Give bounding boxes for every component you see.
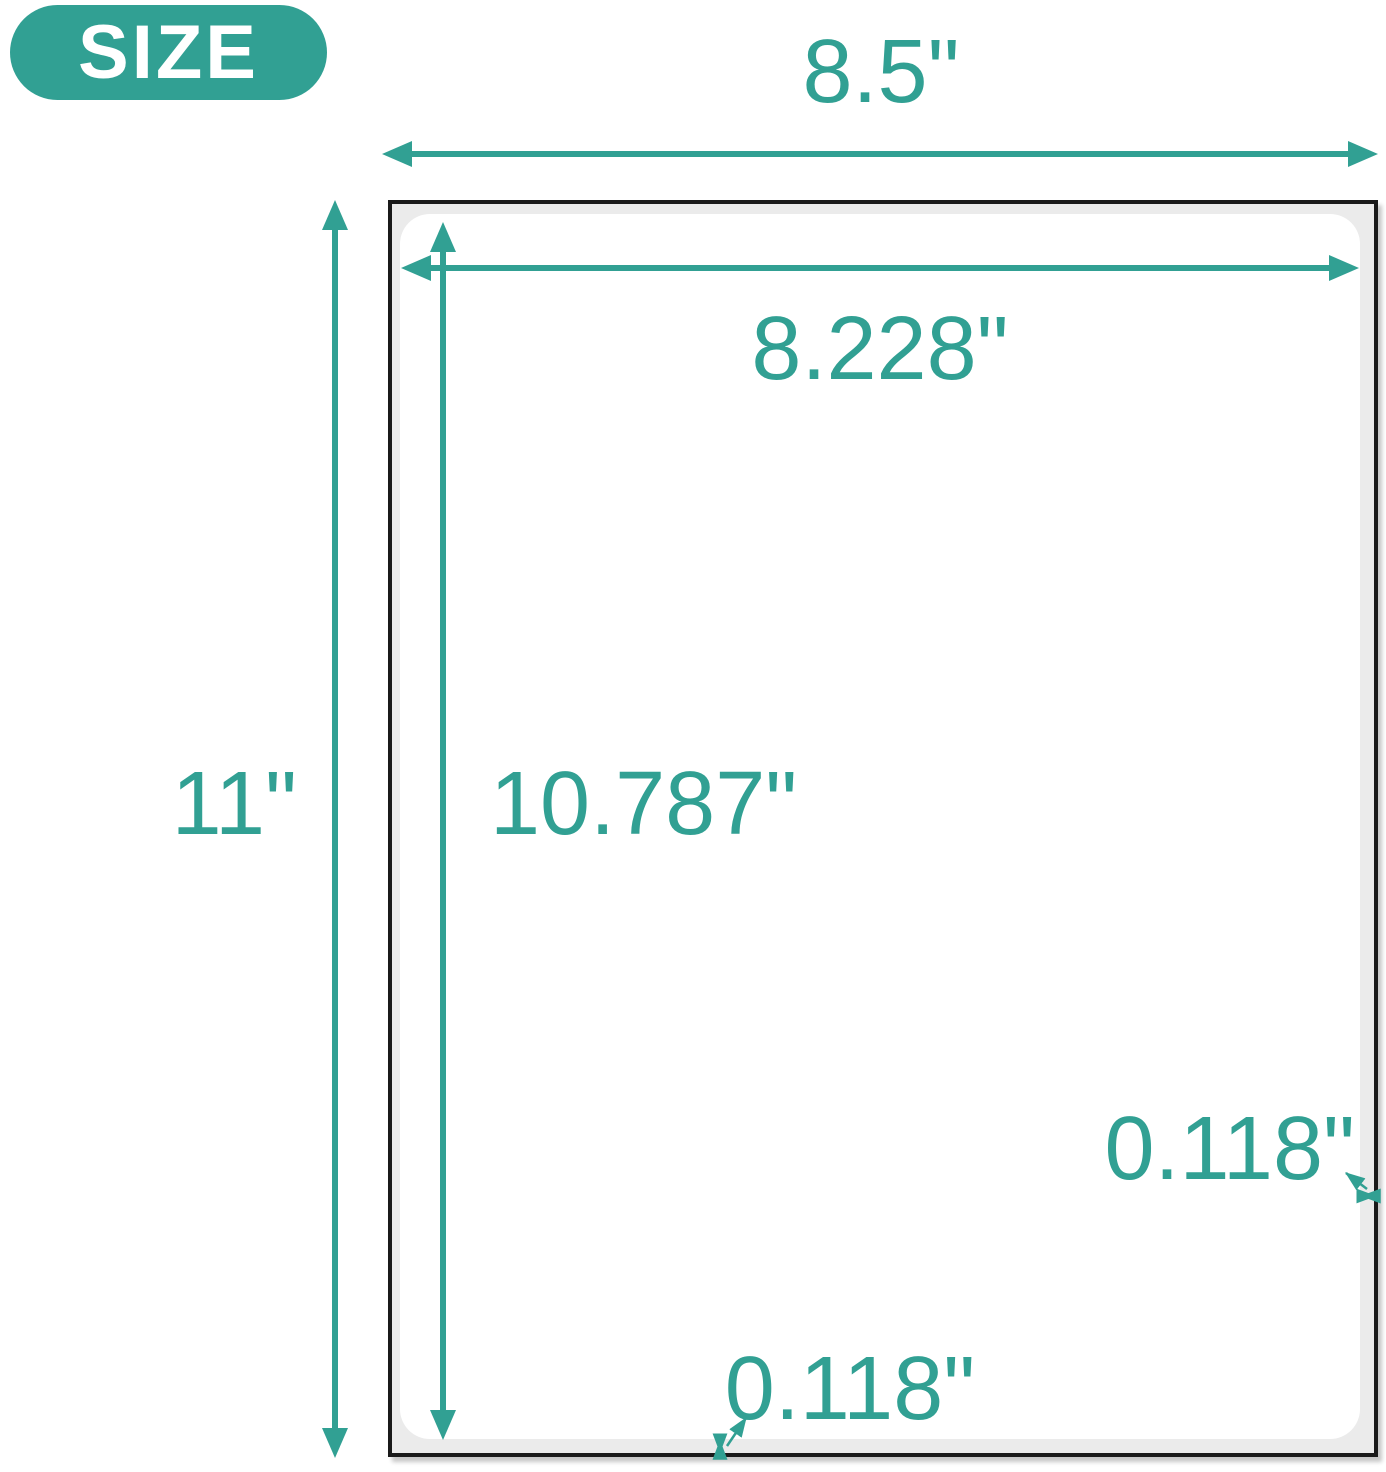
arrow-shaft: [440, 242, 446, 1420]
margin-right-pointer: [1332, 1162, 1386, 1206]
arrowhead-right-icon: [1329, 255, 1359, 281]
margin-bottom-pointer: [698, 1398, 770, 1470]
margin-right-dimension: 0.118": [1055, 1104, 1355, 1194]
arrow-shaft: [402, 151, 1358, 157]
sheet-width-dimension: 8.5": [384, 27, 1378, 117]
leader-line-icon: [1346, 1173, 1367, 1189]
label-width-dimension: 8.228": [401, 304, 1359, 394]
label-width-arrow: [401, 255, 1359, 281]
size-badge-label: SIZE: [78, 15, 259, 91]
sheet-height-arrow: [322, 200, 348, 1458]
arrow-shaft: [421, 265, 1339, 271]
arrowhead-right-icon: [1348, 141, 1378, 167]
arrowhead-down-icon: [322, 1428, 348, 1458]
arrowhead-down-icon: [430, 1410, 456, 1440]
leader-line-icon: [727, 1418, 746, 1446]
label-height-dimension: 10.787": [490, 759, 797, 849]
arrow-shaft: [332, 220, 338, 1438]
sheet-height-dimension: 11": [117, 759, 297, 849]
size-diagram: SIZE 8.5" 11" 8.228" 10.787" 0.118": [0, 0, 1386, 1472]
sheet-width-arrow: [382, 141, 1378, 167]
size-badge: SIZE: [10, 5, 327, 100]
label-height-arrow: [430, 222, 456, 1440]
